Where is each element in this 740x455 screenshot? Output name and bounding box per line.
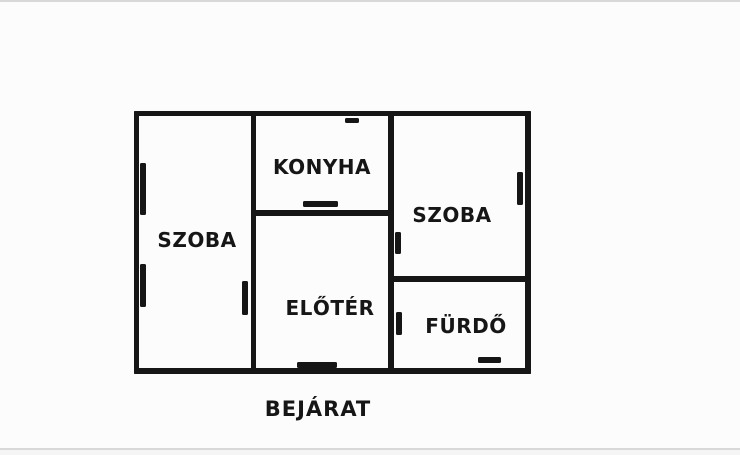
window-marker-szoba-left-lower: [140, 264, 146, 307]
top-border-line: [0, 0, 740, 2]
outer-wall-left: [134, 111, 139, 374]
vent-marker-konyha-top: [345, 118, 359, 123]
outer-wall-bottom: [134, 368, 531, 374]
inner-wall-szoba-left-divider: [251, 111, 256, 374]
window-marker-szoba-left-upper: [140, 163, 146, 215]
door-marker-szoba-right: [395, 232, 401, 254]
entrance-label: BEJÁRAT: [265, 397, 372, 421]
outer-wall-right: [525, 111, 531, 374]
outer-wall-top: [134, 111, 531, 116]
room-label-szoba-left: SZOBA: [157, 228, 236, 252]
room-label-furdo: FÜRDŐ: [425, 314, 506, 338]
window-marker-szoba-right: [517, 172, 523, 205]
room-label-szoba-right: SZOBA: [412, 203, 491, 227]
inner-wall-szoba-furdo: [388, 276, 531, 282]
door-marker-szoba-left: [242, 281, 248, 315]
bottom-fade: [0, 450, 740, 455]
room-label-konyha: KONYHA: [273, 155, 371, 179]
inner-wall-center-divider: [388, 114, 394, 374]
marker-furdo-bottom: [478, 357, 501, 363]
floorplan-canvas: SZOBA KONYHA SZOBA ELŐTÉR FÜRDŐ BEJÁRAT: [0, 0, 740, 455]
door-marker-entrance: [297, 362, 337, 368]
door-marker-konyha: [303, 201, 338, 207]
inner-wall-konyha-eloter: [251, 210, 394, 216]
door-marker-furdo: [396, 312, 402, 335]
room-label-eloter: ELŐTÉR: [285, 296, 374, 320]
